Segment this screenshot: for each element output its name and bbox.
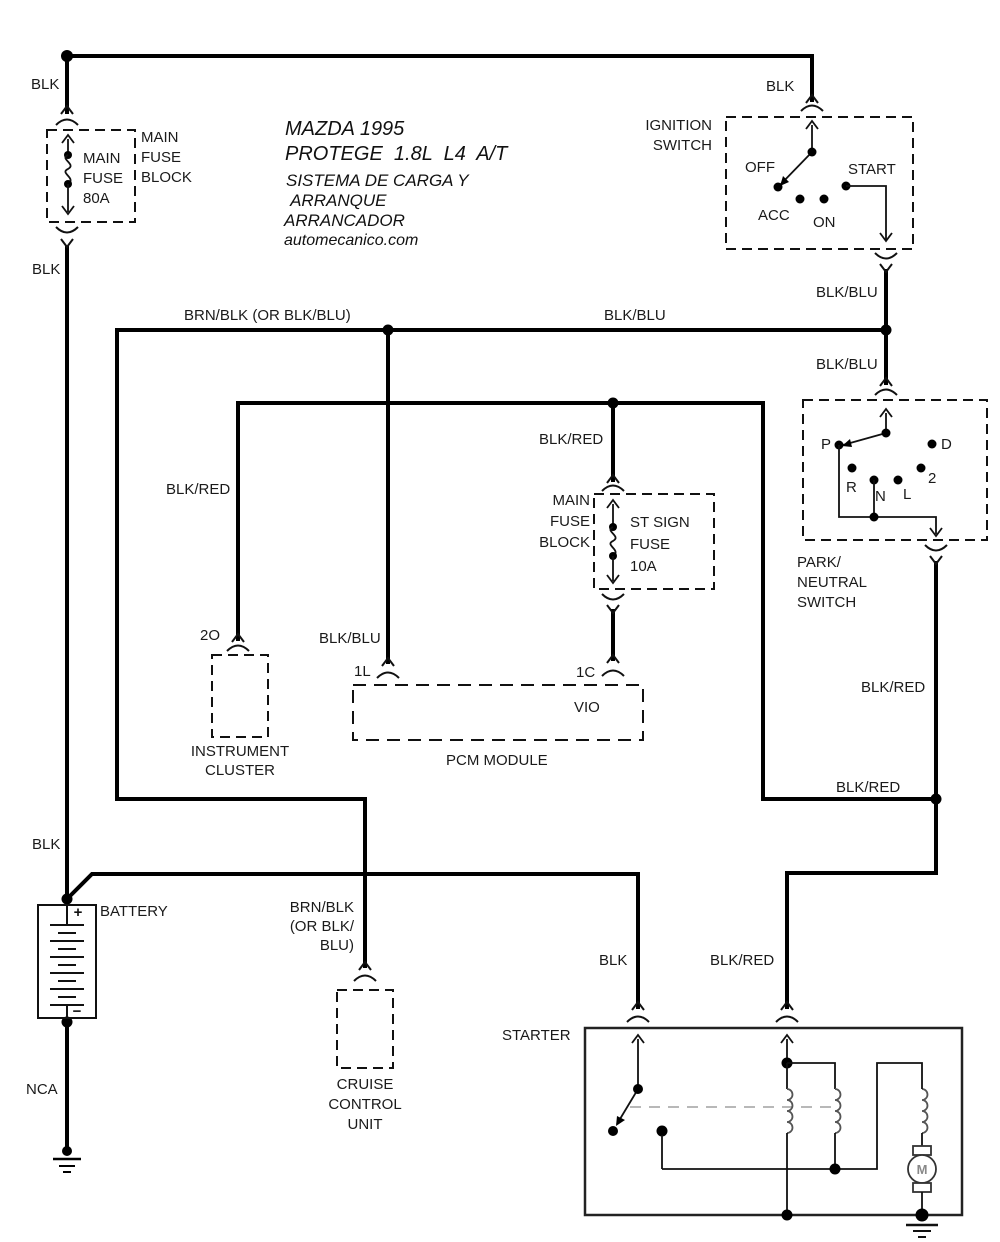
- cruise-control-box: [337, 990, 393, 1068]
- ignition-pos-off: OFF: [745, 159, 775, 176]
- motor-icon: M: [908, 1146, 936, 1192]
- connector-icon: [875, 390, 897, 396]
- title-line-1: MAZDA 1995: [285, 118, 404, 141]
- pnp-pos-l: L: [903, 486, 911, 503]
- cruise-control-label-1: CRUISE: [313, 1076, 417, 1093]
- instrument-cluster: [212, 634, 268, 737]
- terminal-flare-icon: [61, 239, 73, 247]
- wire-label-blkblu: BLK/BLU: [604, 307, 666, 324]
- junction-dot: [931, 794, 942, 805]
- coil-icon: [787, 1089, 793, 1133]
- title-line-5: ARRANCADOR: [284, 211, 405, 231]
- main-fuse-label-2: FUSE: [83, 170, 123, 187]
- cruise-control-unit: [337, 962, 393, 1068]
- ignition-switch: [726, 95, 913, 272]
- instrument-cluster-label-2: CLUSTER: [178, 762, 302, 779]
- st-fuse-block-label-3: BLOCK: [538, 534, 590, 551]
- battery-plus-sign: +: [74, 904, 83, 921]
- pnp-pos-r: R: [846, 479, 857, 496]
- instrument-cluster-label-1: INSTRUMENT: [178, 743, 302, 760]
- blade-arrowhead: [842, 439, 852, 447]
- junction-dots: [61, 50, 942, 1028]
- contact-pivot: [808, 148, 817, 157]
- wire-label-blkred: BLK/RED: [539, 431, 603, 448]
- title-line-4: ARRANQUE: [286, 191, 386, 211]
- pnp-pos-n: N: [875, 488, 886, 505]
- pnp-switch-label-3: SWITCH: [797, 594, 856, 611]
- ignition-switch-label-2: SWITCH: [615, 137, 712, 154]
- st-fuse-block-label-1: MAIN: [538, 492, 590, 509]
- main-fuse-block-label-1: MAIN: [141, 129, 179, 146]
- contact-moving: [608, 1126, 618, 1136]
- contact-l: [894, 476, 903, 485]
- junction-dot: [62, 894, 73, 905]
- wire-label-blkred: BLK/RED: [861, 679, 925, 696]
- wire-label-blkblu: BLK/BLU: [319, 630, 381, 647]
- starter-label: STARTER: [502, 1027, 571, 1044]
- fuse-icon: [609, 523, 617, 560]
- connector-icon: [776, 1017, 798, 1023]
- junction-dot: [608, 398, 619, 409]
- wire-label-blkblu: BLK/BLU: [816, 284, 878, 301]
- main-fuse-label-3: 80A: [83, 190, 110, 207]
- wire-label-brnblk-long: BRN/BLK (OR BLK/BLU): [184, 307, 351, 324]
- wire-label-blk: BLK: [766, 78, 794, 95]
- junction-dot: [830, 1164, 841, 1175]
- junction-dot: [61, 50, 73, 62]
- ground-icon: [906, 1209, 938, 1238]
- pnp-pos-d: D: [941, 436, 952, 453]
- battery: + −: [38, 904, 96, 1020]
- cruise-control-label-2: CONTROL: [313, 1096, 417, 1113]
- ignition-switch-label-1: IGNITION: [615, 117, 712, 134]
- wire-label-blk: BLK: [31, 76, 59, 93]
- contact-2: [917, 464, 926, 473]
- wire-blk-top: [67, 56, 812, 114]
- battery-cells-icon: [50, 905, 84, 1018]
- main-fuse-label-1: MAIN: [83, 150, 121, 167]
- battery-label: BATTERY: [100, 903, 168, 920]
- connector-icon: [627, 1017, 649, 1023]
- battery-minus-sign: −: [73, 1003, 82, 1020]
- coil-icon: [835, 1089, 841, 1133]
- connector-icon: [56, 227, 78, 233]
- wire-label-blkred: BLK/RED: [836, 779, 900, 796]
- junction-dot: [881, 325, 892, 336]
- terminal-flare-icon: [880, 264, 892, 272]
- instrument-cluster-box: [212, 655, 268, 737]
- terminal-2o: 2O: [200, 627, 220, 644]
- wire-label-brnblk-1: BRN/BLK: [278, 899, 354, 916]
- st-fuse-label-2: FUSE: [630, 536, 670, 553]
- contact-fixed: [657, 1126, 668, 1137]
- contact-r: [848, 464, 857, 473]
- starter: M: [585, 1002, 962, 1237]
- ground-icon: [53, 1146, 81, 1172]
- contact-on: [820, 195, 829, 204]
- title-line-3: SISTEMA DE CARGA Y: [286, 171, 469, 191]
- ignition-pos-start: START: [848, 161, 896, 178]
- wire-label-brnblk-3: BLU): [278, 937, 354, 954]
- pnp-switch-label-2: NEUTRAL: [797, 574, 867, 591]
- pnp-pos-2: 2: [928, 470, 936, 487]
- st-fuse-label-3: 10A: [630, 558, 657, 575]
- connector-icon: [56, 120, 78, 126]
- connector-icon: [875, 253, 897, 259]
- connector-icon: [801, 106, 823, 112]
- pnp-switch-box: [803, 400, 987, 540]
- connector-icon: [602, 486, 624, 492]
- wire-label-blkred: BLK/RED: [166, 481, 230, 498]
- contact-pivot: [882, 429, 891, 438]
- contact-pivot: [633, 1084, 643, 1094]
- terminal-1c: 1C: [576, 664, 595, 681]
- connector-icon: [925, 545, 947, 551]
- pcm-module: [353, 655, 643, 740]
- connector-icon: [227, 646, 249, 652]
- pnp-pos-p: P: [821, 436, 831, 453]
- connector-icon: [602, 594, 624, 600]
- junction-dot: [782, 1210, 793, 1221]
- ignition-pos-on: ON: [813, 214, 836, 231]
- connector-icon: [354, 976, 376, 982]
- park-neutral-switch: [803, 378, 987, 564]
- fuse-icon: [64, 151, 72, 188]
- pcm-module-label: PCM MODULE: [446, 752, 548, 769]
- connector-icon: [377, 673, 399, 679]
- wire-label-blk: BLK: [32, 261, 60, 278]
- st-fuse-label-1: ST SIGN: [630, 514, 690, 531]
- wire-label-nca: NCA: [26, 1081, 58, 1098]
- contact-d: [928, 440, 937, 449]
- starter-box: [585, 1028, 962, 1215]
- title-line-6: automecanico.com: [284, 232, 418, 250]
- schematic-canvas: + −: [0, 0, 1000, 1242]
- st-fuse-block-label-2: FUSE: [538, 513, 590, 530]
- contact-off: [774, 183, 783, 192]
- wiring-diagram: + −: [0, 0, 1000, 1242]
- motor-letter: M: [917, 1162, 928, 1177]
- terminal-flare-icon: [930, 556, 942, 564]
- main-fuse-block-label-3: BLOCK: [141, 169, 192, 186]
- coil-icon: [922, 1089, 928, 1133]
- wire-label-blk: BLK: [599, 952, 627, 969]
- cruise-control-label-3: UNIT: [313, 1116, 417, 1133]
- junction-dot: [383, 325, 394, 336]
- connector-icon: [602, 671, 624, 677]
- wire-label-blk: BLK: [32, 836, 60, 853]
- main-fuse-block-label-2: FUSE: [141, 149, 181, 166]
- wire-label-brnblk-2: (OR BLK/: [278, 918, 354, 935]
- wire-label-vio: VIO: [574, 699, 600, 716]
- junction-dot: [870, 513, 879, 522]
- title-line-2: PROTEGE 1.8L L4 A/T: [285, 143, 507, 166]
- contact-acc: [796, 195, 805, 204]
- pnp-switch-label-1: PARK/: [797, 554, 841, 571]
- ignition-pos-acc: ACC: [758, 207, 790, 224]
- terminal-1l: 1L: [354, 663, 371, 680]
- wire-label-blkred: BLK/RED: [710, 952, 774, 969]
- wire-label-blkblu: BLK/BLU: [816, 356, 878, 373]
